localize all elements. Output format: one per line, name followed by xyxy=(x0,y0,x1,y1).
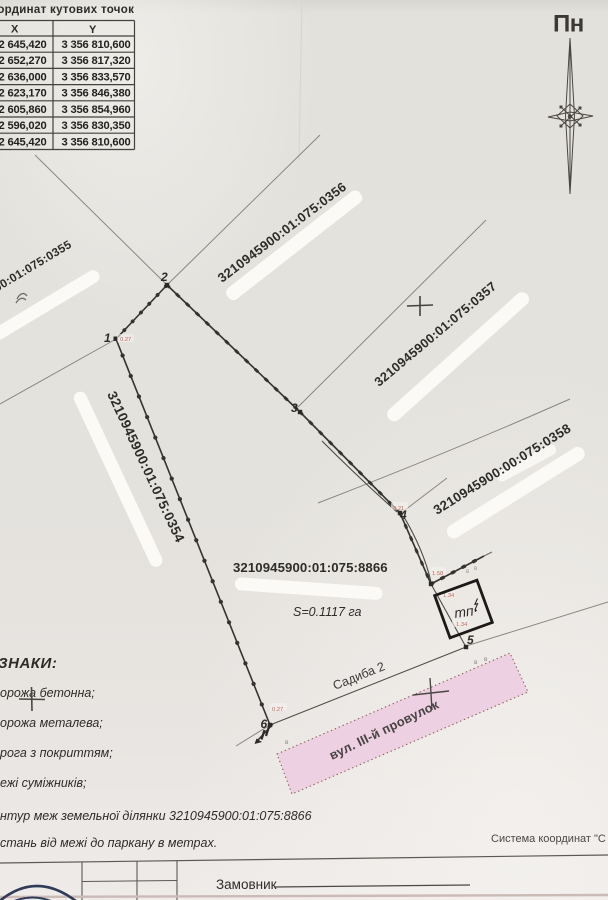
svg-text:2 652,270: 2 652,270 xyxy=(0,55,47,67)
svg-text:в: в xyxy=(474,659,478,666)
svg-text:рога з покриттям;: рога з покриттям; xyxy=(0,746,113,760)
svg-text:3 356 830,350: 3 356 830,350 xyxy=(62,120,131,132)
svg-text:в: в xyxy=(484,656,488,663)
svg-text:в: в xyxy=(466,569,469,575)
svg-text:в: в xyxy=(285,739,289,746)
svg-text:0.27: 0.27 xyxy=(272,707,283,713)
svg-text:Замовник: Замовник xyxy=(216,877,277,892)
svg-text:0.27: 0.27 xyxy=(120,337,131,343)
svg-text:ежі суміжників;: ежі суміжників; xyxy=(0,776,87,790)
svg-text:2 605,860: 2 605,860 xyxy=(0,104,47,116)
svg-text:ЗНАКИ:: ЗНАКИ: xyxy=(0,655,57,672)
svg-text:3210945900:01:075:8866: 3210945900:01:075:8866 xyxy=(233,560,388,575)
svg-text:1: 1 xyxy=(104,331,111,345)
svg-text:Система координат "С: Система координат "С xyxy=(491,833,606,845)
svg-text:2 623,170: 2 623,170 xyxy=(0,88,47,100)
svg-text:2 645,420: 2 645,420 xyxy=(0,137,47,149)
svg-text:в: в xyxy=(474,566,477,572)
svg-text:1.58: 1.58 xyxy=(432,571,443,577)
svg-text:орожа бетонна;: орожа бетонна; xyxy=(0,686,95,700)
svg-text:3 356 817,320: 3 356 817,320 xyxy=(62,55,131,67)
svg-text:5: 5 xyxy=(467,633,474,647)
svg-text:Y: Y xyxy=(89,24,97,36)
svg-text:стань від межі до паркану в ме: стань від межі до паркану в метрах. xyxy=(0,836,217,850)
svg-text:3 356 810,600: 3 356 810,600 xyxy=(62,39,131,51)
svg-text:2: 2 xyxy=(160,270,168,284)
svg-text:6: 6 xyxy=(261,717,268,731)
svg-text:Пн: Пн xyxy=(553,11,584,38)
svg-text:S=0.1117 га: S=0.1117 га xyxy=(293,605,362,619)
svg-text:тп: тп xyxy=(453,602,475,621)
svg-text:2 645,420: 2 645,420 xyxy=(0,39,47,51)
svg-text:орожа металева;: орожа металева; xyxy=(0,716,103,730)
svg-text:3: 3 xyxy=(291,401,298,415)
svg-text:2 596,020: 2 596,020 xyxy=(0,120,47,132)
svg-text:1.34: 1.34 xyxy=(456,622,468,628)
svg-text:1.34: 1.34 xyxy=(443,593,455,599)
svg-text:оординат кутових точок: оординат кутових точок xyxy=(0,4,134,16)
svg-text:3.21: 3.21 xyxy=(393,506,404,512)
svg-text:3 356 846,380: 3 356 846,380 xyxy=(62,88,131,100)
svg-text:нтур меж земельної ділянки 32: нтур меж земельної ділянки 3210945900:01… xyxy=(0,809,312,823)
svg-text:X: X xyxy=(11,24,19,36)
svg-text:3 356 833,570: 3 356 833,570 xyxy=(62,71,131,83)
svg-text:3 356 810,600: 3 356 810,600 xyxy=(62,137,131,149)
svg-text:2 636,000: 2 636,000 xyxy=(0,71,47,83)
svg-text:3 356 854,960: 3 356 854,960 xyxy=(62,104,131,116)
